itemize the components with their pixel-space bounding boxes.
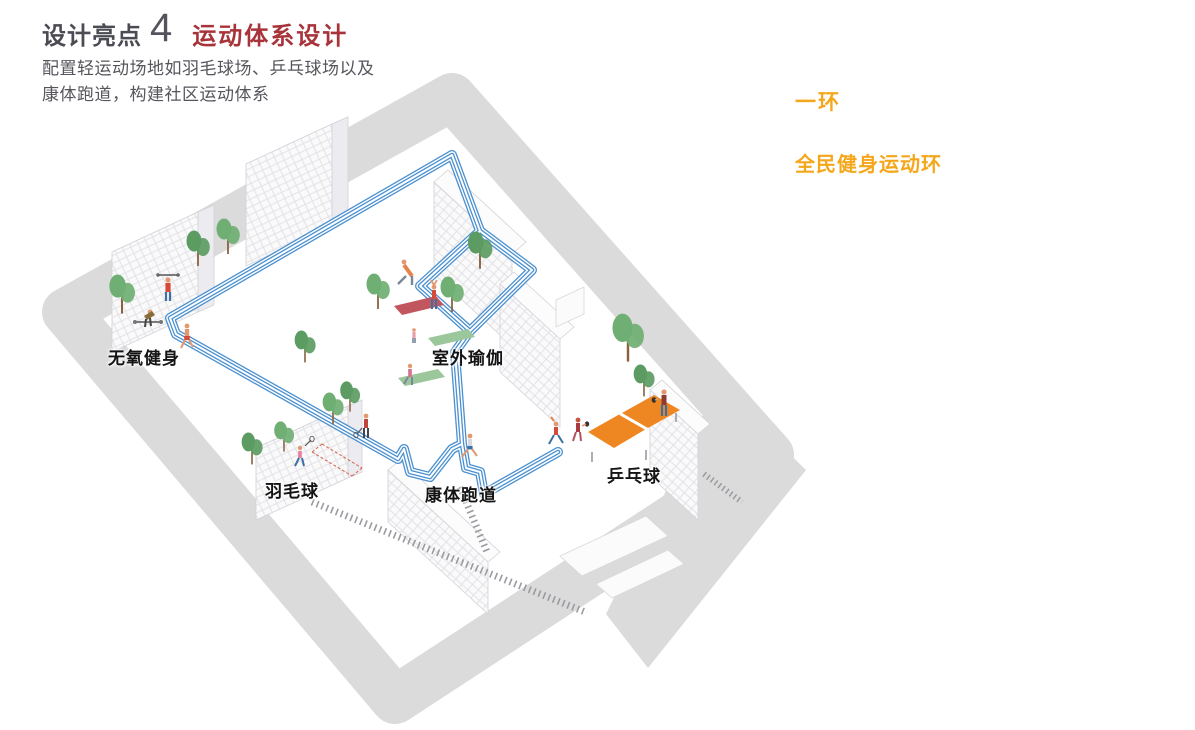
description-line-2: 康体跑道，构建社区运动体系 xyxy=(42,82,375,108)
ring-title: 全民健身运动环 xyxy=(795,148,942,177)
highlight-label: 设计亮点 xyxy=(42,8,142,51)
page-header: 设计亮点 4 运动体系设计 xyxy=(42,8,348,51)
page-title: 运动体系设计 xyxy=(192,8,348,51)
description: 配置轻运动场地如羽毛球场、乒乓球场以及 康体跑道，构建社区运动体系 xyxy=(42,56,375,108)
label-outdoor-yoga: 室外瑜伽 xyxy=(432,344,504,369)
label-fitness-track: 康体跑道 xyxy=(425,481,497,506)
label-badminton: 羽毛球 xyxy=(265,477,319,502)
label-table-tennis: 乒乓球 xyxy=(607,462,661,487)
ring-label: 一环 xyxy=(795,86,841,116)
label-anaerobic-fitness: 无氧健身 xyxy=(108,344,180,369)
description-line-1: 配置轻运动场地如羽毛球场、乒乓球场以及 xyxy=(42,56,375,82)
highlight-number: 4 xyxy=(150,8,172,48)
